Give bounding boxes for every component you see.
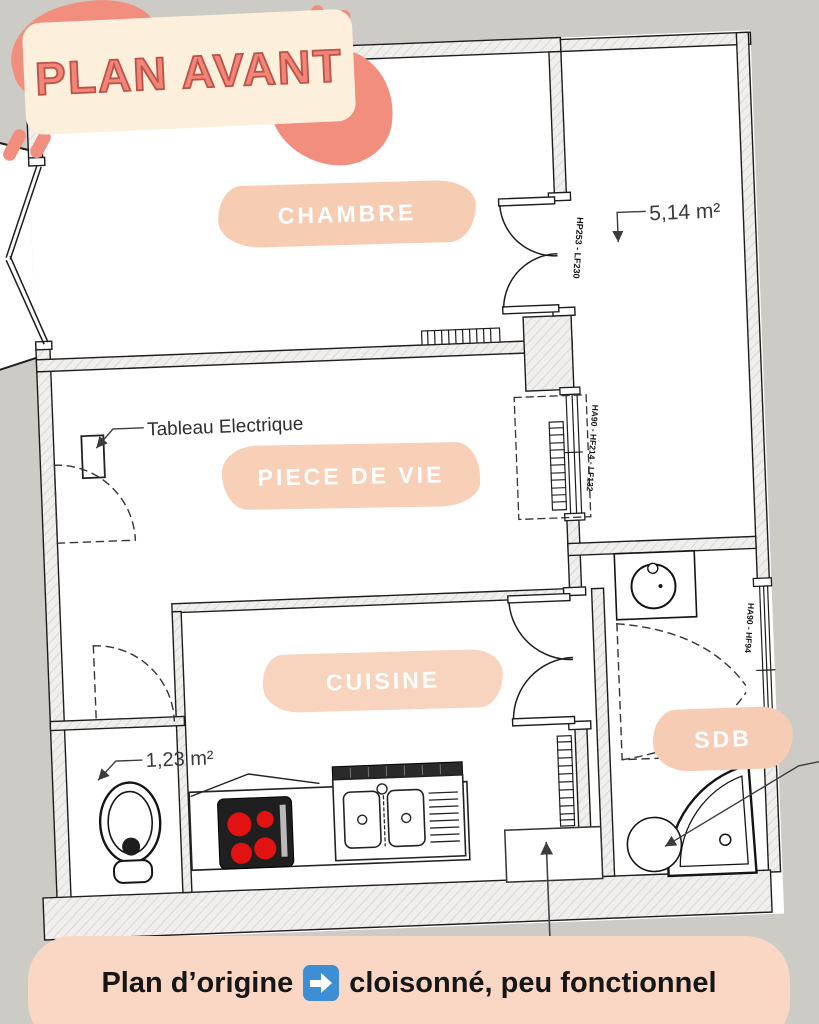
- room-label-sdb: SDB: [652, 706, 794, 773]
- sink-unit: [332, 762, 466, 861]
- room-label-cuisine-text: CUISINE: [325, 666, 440, 696]
- room-label-piece-de-vie-text: PIECE DE VIE: [257, 461, 444, 491]
- page-title: PLAN AVANT: [34, 38, 344, 106]
- radiator-kitchen: [557, 736, 574, 826]
- floor-plan-drawing: HP253 - LF230 5,14 m² Tableau Electrique: [0, 0, 819, 1024]
- room-label-chambre-text: CHAMBRE: [277, 199, 416, 230]
- room-label-cuisine: CUISINE: [262, 649, 504, 714]
- radiator-chambre: [422, 328, 500, 345]
- caption-after: cloisonné, peu fonctionnel: [349, 967, 716, 1000]
- wc-area-label: 1,23 m²: [145, 747, 214, 772]
- right-arrow-icon: [303, 965, 339, 1001]
- poster-canvas: HP253 - LF230 5,14 m² Tableau Electrique: [0, 0, 819, 1024]
- caption-banner: Plan d’origine cloisonné, peu fonctionne…: [28, 936, 790, 1024]
- caption-before: Plan d’origine: [101, 967, 293, 1000]
- corridor-area-label: 5,14 m²: [649, 199, 721, 225]
- stove: [217, 796, 294, 869]
- room-label-chambre: CHAMBRE: [217, 179, 477, 248]
- room-label-sdb-text: SDB: [694, 725, 752, 754]
- washbasin: [614, 551, 696, 620]
- shower-column: [626, 816, 682, 872]
- title-card: PLAN AVANT: [22, 9, 357, 136]
- room-label-piece-de-vie: PIECE DE VIE: [221, 442, 480, 510]
